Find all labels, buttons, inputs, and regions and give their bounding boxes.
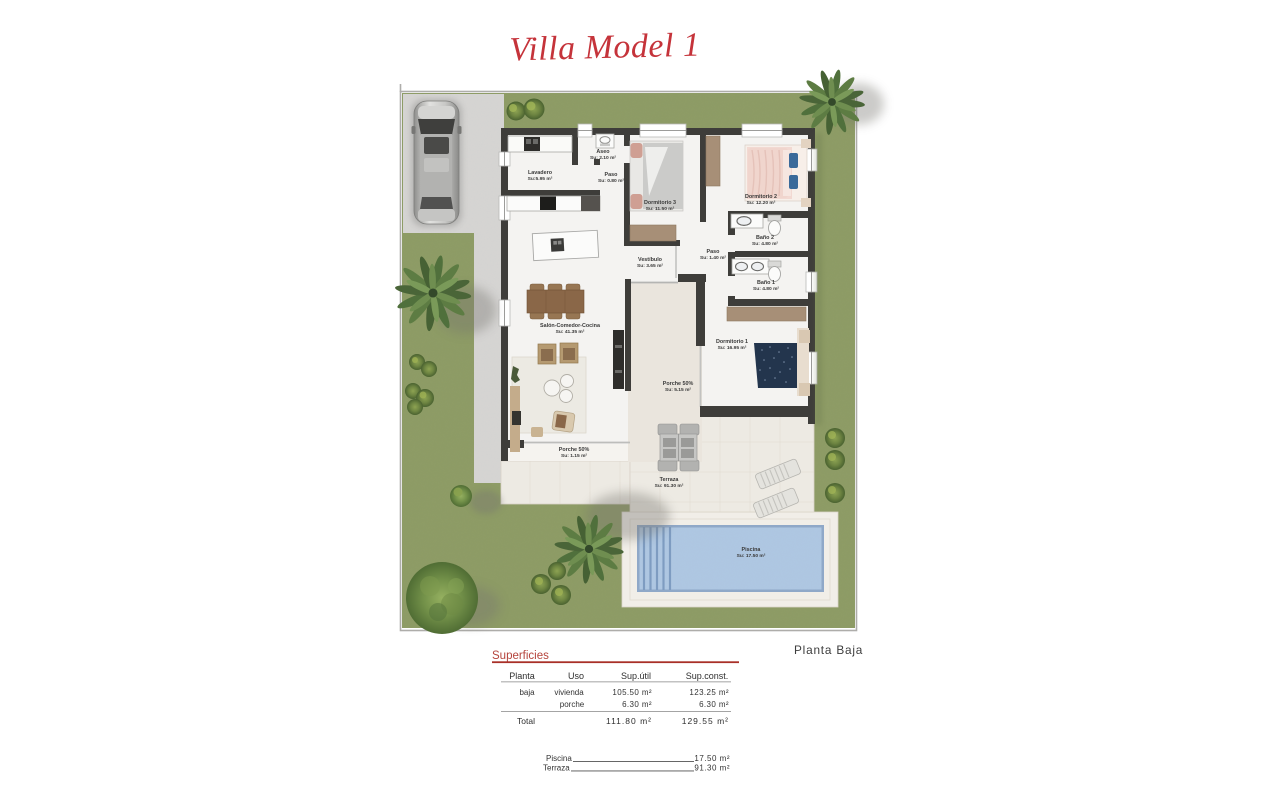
- svg-text:6.30 m²: 6.30 m²: [699, 700, 729, 709]
- svg-text:111.80 m²: 111.80 m²: [606, 716, 652, 726]
- svg-text:Uso: Uso: [568, 671, 584, 681]
- svg-text:6.30 m²: 6.30 m²: [622, 700, 652, 709]
- svg-text:Planta: Planta: [509, 671, 535, 681]
- svg-text:Total: Total: [517, 716, 535, 726]
- svg-text:Planta Baja: Planta Baja: [794, 643, 863, 657]
- svg-text:baja: baja: [519, 688, 535, 697]
- svg-text:Sup.útil: Sup.útil: [621, 671, 651, 681]
- svg-text:123.25 m²: 123.25 m²: [689, 688, 729, 697]
- svg-text:91.30 m²: 91.30 m²: [694, 764, 730, 773]
- svg-text:Villa Model 1: Villa Model 1: [509, 27, 701, 69]
- svg-text:129.55 m²: 129.55 m²: [682, 716, 729, 726]
- svg-text:Piscina: Piscina: [546, 754, 572, 763]
- svg-text:17.50 m²: 17.50 m²: [694, 754, 730, 763]
- svg-text:Superficies: Superficies: [492, 650, 549, 662]
- svg-text:vivienda: vivienda: [554, 688, 584, 697]
- svg-text:Terraza: Terraza: [543, 764, 570, 773]
- svg-text:porche: porche: [560, 700, 585, 709]
- svg-text:105.50 m²: 105.50 m²: [612, 688, 652, 697]
- svg-text:Sup.const.: Sup.const.: [686, 671, 729, 681]
